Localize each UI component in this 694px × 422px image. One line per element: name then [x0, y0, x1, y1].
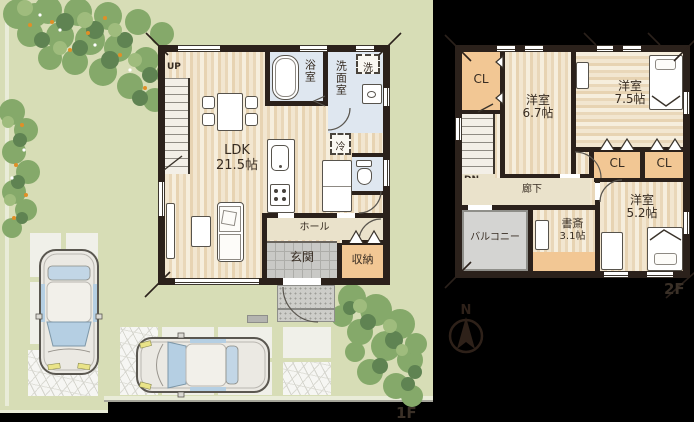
dining-chair-icon [245, 96, 258, 109]
window [178, 45, 220, 52]
window [604, 271, 628, 278]
side-table-icon [191, 216, 211, 247]
dining-chair-icon [245, 113, 258, 126]
balcony-label: バルコニー [462, 232, 528, 243]
window [356, 45, 374, 52]
window [455, 118, 462, 140]
tv-board-icon [166, 203, 175, 259]
bed-icon [647, 227, 683, 271]
floor1-plan: UP LDK 21.5帖 浴室 洗 洗面室 冷 [158, 45, 390, 285]
entrance-porch [277, 285, 335, 322]
dining-table-icon [217, 93, 243, 131]
window [623, 45, 641, 52]
window [525, 45, 543, 52]
washer-label: 洗 [363, 63, 373, 74]
study-name: 書斎 [562, 217, 584, 230]
wall [352, 191, 383, 195]
window [647, 271, 673, 278]
fridge-label: 冷 [336, 142, 346, 153]
sink-icon [271, 145, 289, 171]
corridor-label: 廊下 [492, 184, 572, 195]
car-horizontal-icon [137, 333, 269, 397]
window [300, 45, 327, 52]
window [597, 45, 613, 52]
storage-label: 収納 [342, 254, 383, 266]
sofa-icon [217, 202, 244, 262]
ldk-label: LDK 21.5帖 [203, 144, 271, 173]
up-label: UP [167, 62, 181, 72]
closet1-label: CL [462, 73, 500, 86]
desk-icon [576, 62, 589, 89]
fridge-box: 冷 [330, 133, 351, 155]
window [383, 88, 390, 106]
bedroom-52-name: 洋室 [630, 193, 654, 207]
entrance-label: 玄関 [267, 251, 337, 264]
bedroom-67-name: 洋室 [526, 93, 550, 107]
window [383, 160, 390, 186]
dining-chair-icon [202, 113, 215, 126]
desk-icon [601, 232, 623, 270]
bedroom-67-size: 6.7帖 [522, 106, 553, 120]
study-label: 書斎 3.1帖 [550, 218, 595, 243]
window [158, 182, 165, 216]
washbasin-icon [362, 84, 382, 104]
floor2-tag: 2F [664, 280, 685, 298]
window [175, 278, 259, 285]
closet2-label: CL [594, 157, 640, 170]
bedroom-52-label: 洋室 5.2帖 [604, 194, 680, 221]
floor2-plan: CL DN 洋室 6.7帖 洋室 7.5帖 CL CL [455, 45, 690, 278]
bath-label: 浴室 [303, 59, 315, 83]
desk-icon [535, 220, 549, 250]
shrub-cluster-bottomright [331, 284, 427, 407]
study-counter-icon [533, 252, 595, 271]
porch-step-line [277, 308, 335, 310]
cabinet-icon [322, 160, 352, 212]
car-vertical-icon [36, 250, 102, 374]
washroom-label: 洗面室 [334, 60, 346, 96]
ldk-name: LDK [224, 143, 250, 158]
bedroom-67-label: 洋室 6.7帖 [505, 94, 571, 121]
dining-chair-icon [202, 96, 215, 109]
window [683, 92, 690, 114]
bedroom-75-name: 洋室 [618, 79, 642, 93]
washer-box: 洗 [356, 54, 380, 74]
shrub-cluster-left [0, 99, 40, 238]
wall [265, 52, 270, 101]
closet3-label: CL [645, 157, 683, 170]
floorplan-image: UP LDK 21.5帖 浴室 洗 洗面室 冷 [0, 0, 694, 422]
window [683, 212, 690, 234]
floor1-tag: 1F [396, 404, 417, 422]
hall-label: ホール [267, 222, 362, 233]
window [497, 45, 515, 52]
stairs-up [165, 78, 190, 174]
wall [265, 101, 328, 106]
toilet-icon [357, 168, 372, 185]
wall [323, 52, 328, 101]
entrance-door-opening [283, 278, 321, 285]
study-size: 3.1帖 [560, 231, 586, 242]
toilet-icon [356, 160, 372, 167]
stove-icon [270, 184, 290, 206]
ldk-size: 21.5帖 [216, 158, 258, 173]
bed-icon [649, 55, 683, 110]
stairs-down [462, 114, 495, 174]
bedroom-75-size: 7.5帖 [614, 92, 645, 106]
bathtub-icon [272, 55, 299, 100]
bedroom-52-size: 5.2帖 [626, 206, 657, 220]
